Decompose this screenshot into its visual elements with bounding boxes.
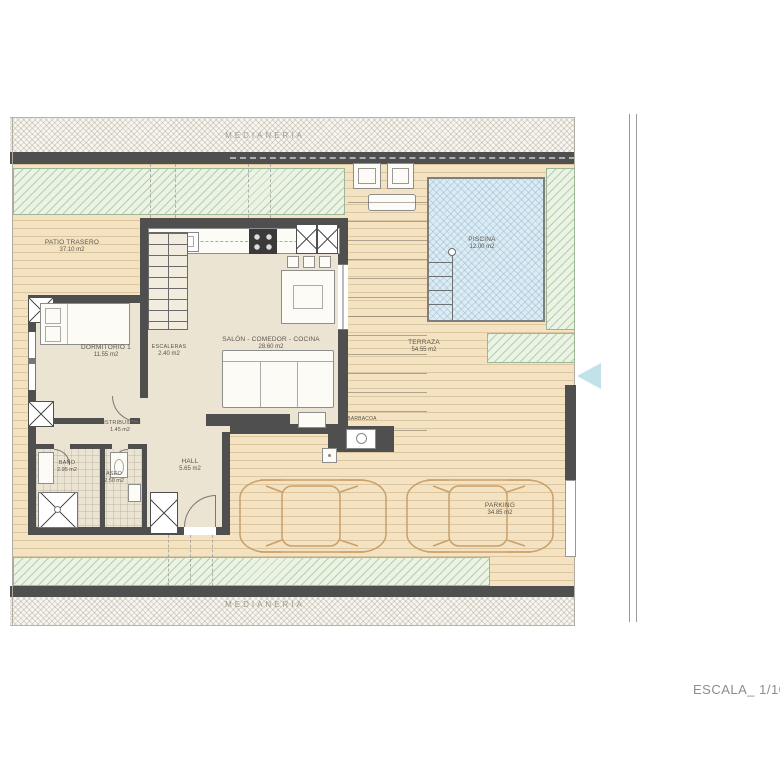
sofa <box>222 350 334 408</box>
pool-step-3 <box>429 290 453 291</box>
lawn-strip-top <box>13 168 345 215</box>
pillar-icon <box>150 492 178 534</box>
pergola-beams <box>348 202 427 432</box>
car-icon <box>236 472 390 560</box>
dining-table <box>281 270 335 324</box>
guide-line-4 <box>270 164 271 218</box>
guide-line-3 <box>248 164 249 218</box>
lawn-strip-right <box>546 168 575 330</box>
shower-drain-icon <box>54 506 61 513</box>
wall-dormitorio-salon <box>140 303 148 398</box>
barbacoa-side-unit <box>322 448 337 463</box>
scale-label: ESCALA_ 1/100 <box>693 682 780 697</box>
bed <box>40 303 130 345</box>
side-table <box>298 412 326 428</box>
margin-line-outer <box>629 114 630 622</box>
entry-marker-icon <box>577 363 601 389</box>
boundary-fence-top <box>230 157 575 159</box>
pool <box>427 177 545 322</box>
lawn-strip-bottom <box>13 557 490 586</box>
toilet-icon <box>110 452 128 478</box>
aseo-sink-icon <box>128 484 141 502</box>
wall-west-stairs <box>140 218 148 303</box>
pillar-icon <box>28 401 54 427</box>
bath-sink-icon <box>38 452 54 484</box>
kitchen-cabinet-icon <box>317 224 338 254</box>
right-boundary-pillar <box>565 385 576 480</box>
pool-ladder-handle-icon <box>448 248 456 256</box>
pillow <box>45 326 61 342</box>
dining-chair <box>287 256 299 268</box>
tv-bench <box>206 414 290 426</box>
guide-line-2 <box>175 164 176 218</box>
dining-chair <box>319 256 331 268</box>
party-wall-label-top: MEDIANERÍA <box>120 131 410 140</box>
margin-line-inner <box>636 114 637 622</box>
pool-step-2 <box>429 276 453 277</box>
party-wall-band-bottom <box>10 594 575 626</box>
wall-bath-north <box>36 444 146 449</box>
barbacoa-sink-icon <box>346 429 376 449</box>
dormitorio-window <box>28 332 36 390</box>
party-wall-label-bottom: MEDIANERÍA <box>120 600 410 609</box>
stove-icon <box>249 229 277 254</box>
floor-plan-canvas: MEDIANERÍA MEDIANERÍA PISCINA 12.00 m2 <box>0 0 780 780</box>
guide-line-6 <box>190 535 191 586</box>
pool-step-1 <box>429 262 453 263</box>
wall-aseo-hall <box>142 444 147 532</box>
outdoor-stool-2 <box>387 163 414 189</box>
entrance-door-gap <box>184 527 216 535</box>
pillow <box>45 308 61 324</box>
entrance-door-leaf <box>215 495 216 527</box>
kitchen-cabinet-icon <box>296 224 317 254</box>
guide-line-1 <box>150 164 151 218</box>
boundary-wall-bottom <box>10 586 575 597</box>
wall-bano-aseo <box>100 444 105 532</box>
guide-line-7 <box>212 535 213 586</box>
car-icon <box>398 472 562 560</box>
pool-step-4 <box>429 304 453 305</box>
guide-line-5 <box>168 535 169 586</box>
lawn-band-middle-right <box>487 333 575 363</box>
driveway-gate <box>565 480 576 557</box>
outdoor-stool-1 <box>353 163 381 189</box>
dining-chair <box>303 256 315 268</box>
terrace-door-window <box>338 264 348 330</box>
wall-east-hall <box>222 432 230 535</box>
stairs <box>148 232 188 330</box>
